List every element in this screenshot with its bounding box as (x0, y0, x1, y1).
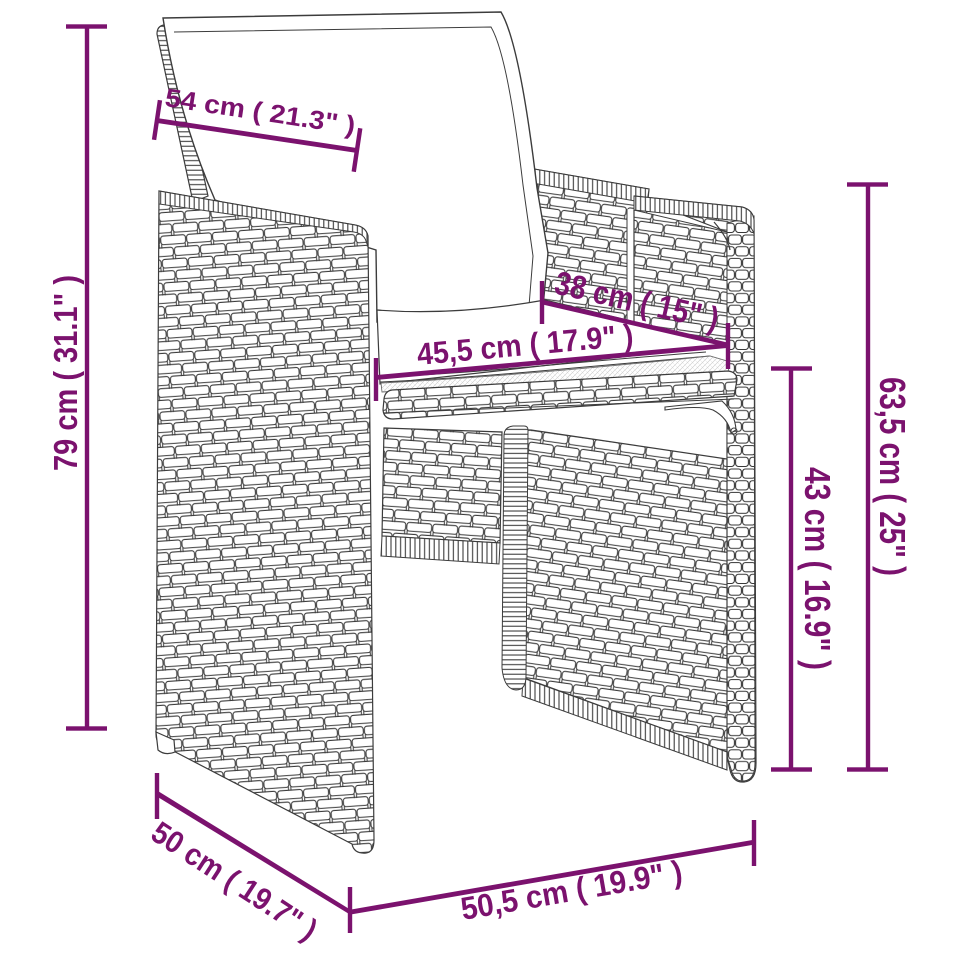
svg-text:63,5 cm ( 25" ): 63,5 cm ( 25" ) (872, 377, 913, 576)
svg-text:79 cm ( 31.1" ): 79 cm ( 31.1" ) (47, 275, 84, 471)
svg-text:43 cm ( 16.9" ): 43 cm ( 16.9" ) (797, 467, 838, 670)
